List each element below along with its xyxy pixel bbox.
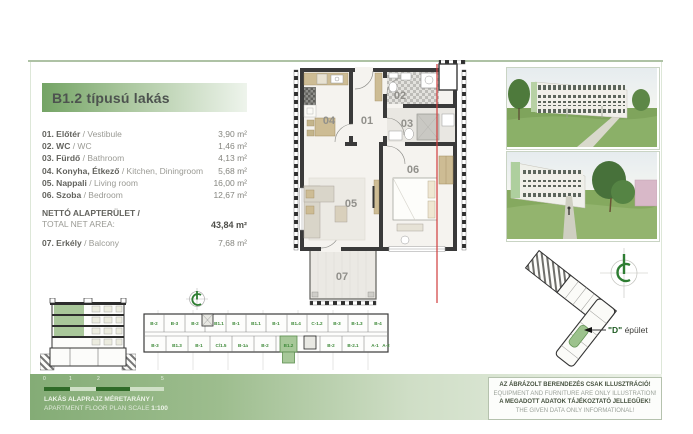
svg-text:B-1.3: B-1.3 [351,321,363,326]
disclaimer-hu-2: A MEGADOTT ADATOK TÁJÉKOZTATÓ JELLEGŰEK! [489,398,661,407]
svg-text:B-3: B-3 [151,343,159,348]
left-margin-line [30,62,31,374]
svg-text:B-3: B-3 [333,321,341,326]
room-row-01: 01. Előtér / Vestibule 3,90 m² [42,128,247,140]
label-room-04: 04 [323,115,336,127]
page-title: B1.2 típusú lakás [42,90,170,106]
north-compass-icon [600,248,648,298]
title-bar: B1.2 típusú lakás [42,83,247,112]
room-row-06: 06. Szoba / Bedroom 12,67 m² [42,189,247,201]
stair-core-bottom [304,336,316,349]
room-area-03: 4,13 m² [218,152,247,164]
label-room-07: 07 [336,271,348,283]
room-area-04: 5,68 m² [218,165,247,177]
building [531,82,627,118]
highlighted-unit [280,336,297,363]
svg-text:C/1.5: C/1.5 [216,343,227,348]
total-label-hu: NETTÓ ALAPTERÜLET / [42,208,140,219]
svg-text:B-2: B-2 [327,343,335,348]
scale-caption-en: APARTMENT FLOOR PLAN SCALE 1:100 [44,404,168,413]
svg-text:B1.1: B1.1 [214,321,224,326]
render-photo-2 [506,151,660,242]
key-floor-plan: B-2 B-3 B-2 B1.1 B-1 B1.1 B-1 B1.4 C-1.2… [138,288,394,378]
svg-text:B-2: B-2 [150,321,158,326]
site-plan: "D" épület [500,240,665,378]
total-net-area-value: 43,84 m² [211,220,247,230]
svg-text:A-2: A-2 [382,343,390,348]
building-d-label: "D" [608,325,622,335]
hall-closet [375,73,382,101]
room-row-05: 05. Nappali / Living room 16,00 m² [42,177,247,189]
svg-text:B-2: B-2 [191,321,199,326]
svg-text:B1.3: B1.3 [172,343,182,348]
svg-text:B1.1: B1.1 [251,321,261,326]
svg-text:B1.4: B1.4 [291,321,301,326]
room-area-06: 12,67 m² [213,189,247,201]
north-compass-small-icon [186,288,208,310]
room-row-03: 03. Fürdő / Bathroom 4,13 m² [42,152,247,164]
room-area-01: 3,90 m² [218,128,247,140]
svg-text:B-1: B-1 [272,321,280,326]
far-building [635,180,657,206]
svg-text:B-1a: B-1a [238,343,248,348]
svg-text:B-2: B-2 [261,343,269,348]
disclaimer-hu-1: AZ ÁBRÁZOLT BERENDEZÉS CSAK ILLUSZTRÁCIÓ… [489,381,661,390]
svg-text:"D" épület: "D" épület [608,325,648,335]
room-area-07: 7,68 m² [218,237,247,249]
room-area-05: 16,00 m² [213,177,247,189]
label-room-05: 05 [345,198,357,210]
label-room-03: 03 [401,118,413,130]
svg-text:B1.2: B1.2 [284,343,294,348]
label-room-06: 06 [407,164,419,176]
total-net-area-row: NETTÓ ALAPTERÜLET / TOTAL NET AREA: 43,8… [42,208,247,230]
disclaimer-box: AZ ÁBRÁZOLT BERENDEZÉS CSAK ILLUSZTRÁCIÓ… [488,377,662,420]
building-section [40,298,136,378]
label-room-02: 02 [394,90,406,102]
room-area-02: 1,46 m² [218,140,247,152]
disclaimer-en-1: EQUIPMENT AND FURNITURE ARE ONLY ILLUSTR… [489,390,661,399]
render-photo-1 [506,67,660,150]
highlighted-floors [54,305,84,336]
svg-text:B-1: B-1 [232,321,240,326]
svg-text:B-3: B-3 [171,321,179,326]
building-footprint [500,251,616,368]
scale-caption-hu: LAKÁS ALAPRAJZ MÉRETARÁNY / [44,395,168,404]
room-area-list: 01. Előtér / Vestibule 3,90 m² 02. WC / … [42,128,247,249]
apartment-datasheet-page: B1.2 típusú lakás 01. Előtér / Vestibule… [0,0,693,434]
svg-text:A-1: A-1 [371,343,379,348]
label-room-01: 01 [361,115,373,127]
svg-text:C-1.2: C-1.2 [311,321,323,326]
room-row-07: 07. Erkély / Balcony 7,68 m² [42,237,247,249]
shaft-box [439,64,457,90]
total-label-en: TOTAL NET AREA: [42,219,140,230]
footer-bar: 0 1 2 5 LAKÁS ALAPRAJZ MÉRETARÁNY / APAR… [30,374,662,420]
scale-caption: LAKÁS ALAPRAJZ MÉRETARÁNY / APARTMENT FL… [44,395,168,413]
room-row-04: 04. Konyha, Étkező / Kitchen, Diningroom… [42,165,247,177]
disclaimer-en-2: THE GIVEN DATA ONLY INFORMATIONAL! [489,407,661,416]
svg-text:B-1: B-1 [195,343,203,348]
svg-text:B-4: B-4 [374,321,382,326]
svg-text:B-2.1: B-2.1 [347,343,359,348]
room-row-02: 02. WC / WC 1,46 m² [42,140,247,152]
apartment-floor-plan: 04 01 02 03 05 06 07 [293,60,469,306]
